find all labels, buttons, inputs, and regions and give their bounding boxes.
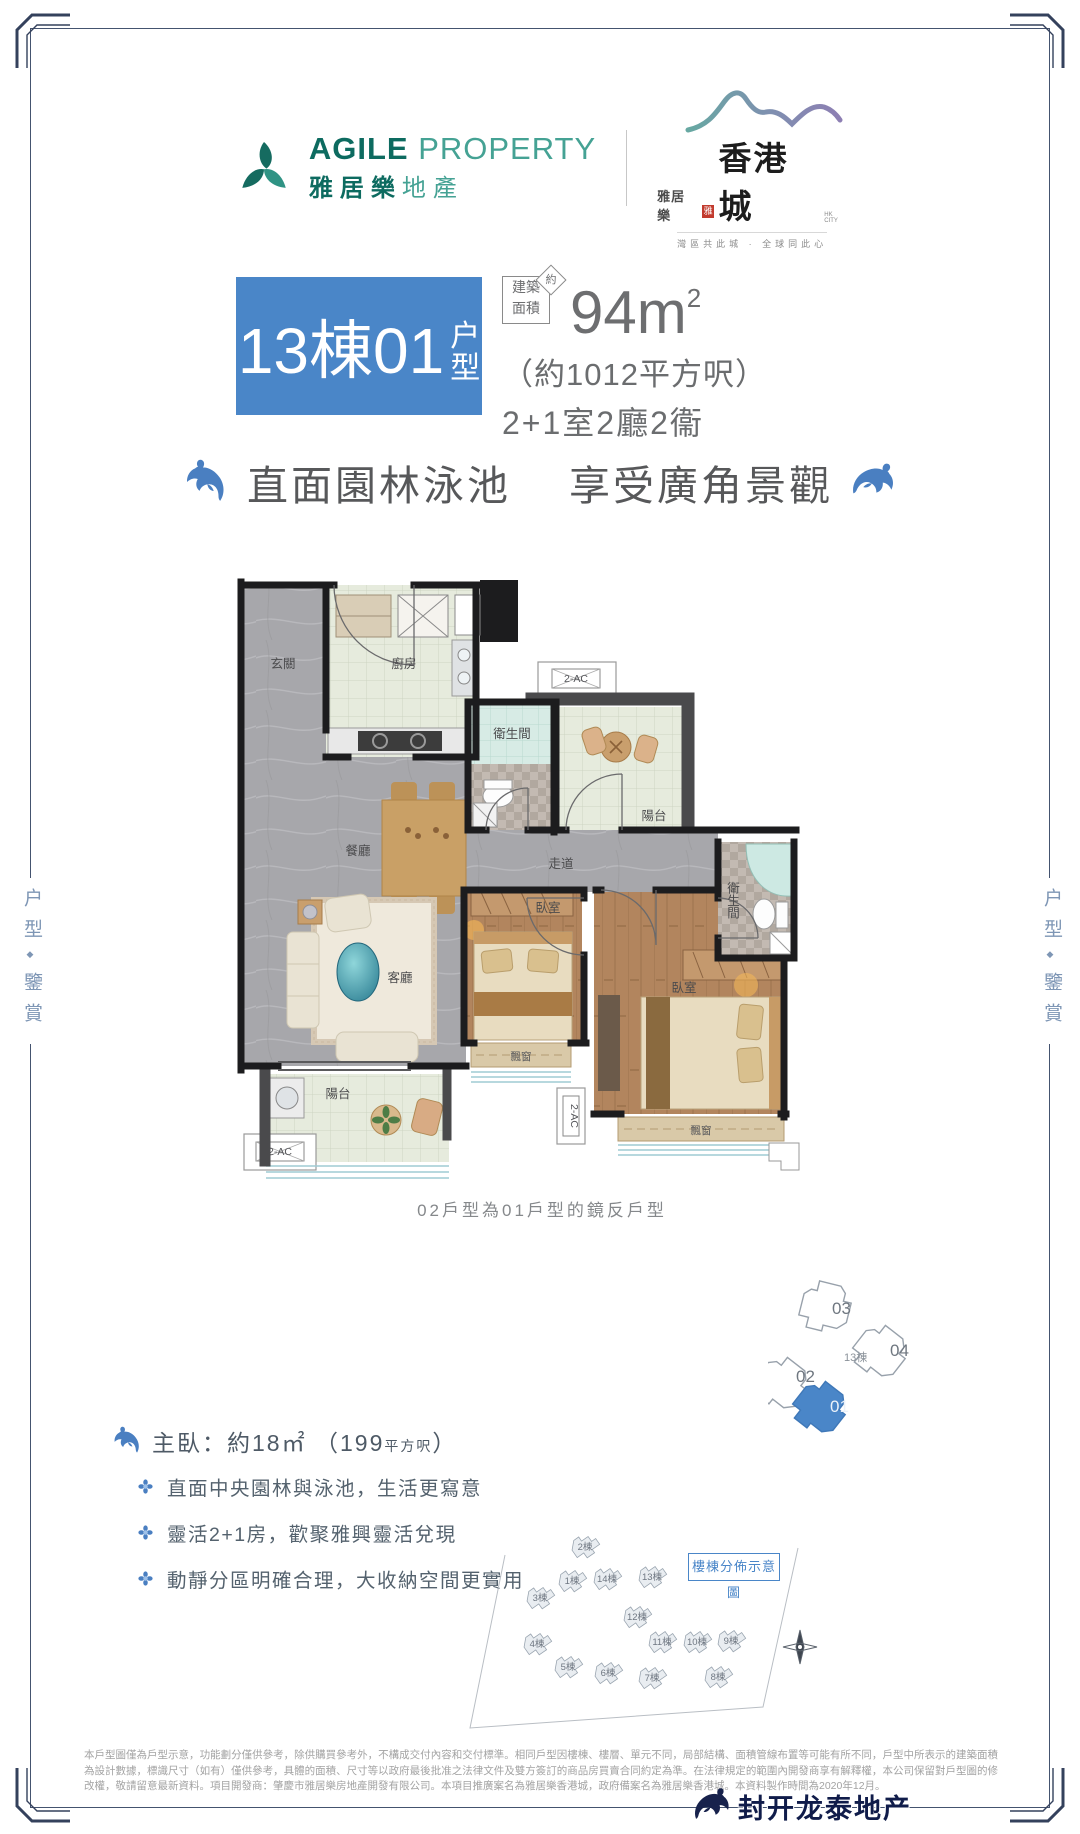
svg-text:2棟: 2棟 [578,1541,593,1553]
label-entry: 玄關 [270,656,295,671]
svg-text:9棟: 9棟 [724,1635,739,1647]
siteplan-building: 8棟 [701,1660,735,1693]
area-hk: （約1012平方呎） [502,349,767,394]
svg-text:2-AC: 2-AC [568,1104,580,1128]
siteplan-building: 7棟 [635,1661,669,1694]
area-value: 94m2 [570,268,701,343]
label-kitchen: 廚房 [391,656,416,671]
dolphin-icon [692,1786,732,1826]
agile-leaf-icon [233,137,295,199]
frame-corner-icon [1008,1766,1066,1824]
hkcity-sub: HK CITY [824,212,847,228]
svg-text:2-AC: 2-AC [268,1146,292,1158]
svg-text:6棟: 6棟 [601,1667,616,1679]
unit-title: 13棟01 [238,300,444,392]
frame-corner-icon [14,1766,72,1824]
built-area-chip: 建築面積 約 [502,276,550,324]
side-label-right: 户型◆鑒賞 [1041,878,1061,1044]
svg-text:13棟: 13棟 [642,1571,663,1583]
header: AGILE PROPERTY 雅居樂地產 雅居樂 雅 香港城 HK CITY 灣… [0,86,1080,250]
label-dining: 餐廳 [345,843,371,858]
unit-key-diagram: 03 04 02 01 13棟 [768,1262,968,1452]
flower-bullet-icon [138,1571,153,1586]
svg-text:2-AC: 2-AC [564,673,588,685]
bathroom1-zone [468,702,556,830]
ac-box-top: 2-AC [538,662,616,696]
label-corridor: 走道 [548,857,574,871]
label-bedroom2: 臥室 [671,980,696,995]
bedroom1-zone [464,888,582,1040]
siteplan-building: 14棟 [590,1562,624,1595]
unit-02: 02 [796,1367,815,1386]
siteplan-building: 6棟 [591,1656,625,1689]
hkcity-pre: 雅居樂 [657,186,698,228]
unit-key-building: 13棟 [844,1350,867,1364]
hkcity-logo: 雅居樂 雅 香港城 HK CITY 灣區共此城 · 全球同此心 [657,86,847,250]
siteplan-building: 1棟 [555,1564,589,1597]
hkcity-tagline: 灣區共此城 · 全球同此心 [677,232,827,250]
agile-name-en: AGILE PROPERTY [309,133,596,165]
label-bedroom1: 臥室 [535,900,560,915]
label-bath1: 衛生間 [493,727,531,741]
floorplan-caption: 02戶型為01戶型的鏡反戶型 [186,1196,898,1221]
svg-text:4棟: 4棟 [530,1638,545,1650]
svg-text:8棟: 8棟 [711,1671,726,1683]
siteplan-building: 13棟 [635,1560,669,1593]
dining-zone [382,782,466,914]
svg-text:3棟: 3棟 [533,1592,548,1604]
unit-03: 03 [832,1299,851,1318]
flower-bullet-icon [138,1479,153,1494]
siteplan-building: 2棟 [568,1530,602,1563]
siteplan-building: 3棟 [523,1581,557,1614]
unit-01: 01 [830,1397,849,1416]
label-balcony1: 陽台 [641,808,666,823]
svg-text:14棟: 14棟 [597,1573,618,1585]
selling-points: 直面中央園林與泳池，生活更寫意 靈活2+1房，歡聚雅興靈活兌現 動靜分區明確合理… [138,1472,524,1610]
floor-plan: 2-AC [186,500,898,1192]
unit-specs: 建築面積 約 94m2 （約1012平方呎） 2+1室2廳2衞 [502,268,767,444]
bullet-item: 直面中央園林與泳池，生活更寫意 [138,1472,524,1501]
agency-watermark: 封开龙泰地产 [692,1786,912,1826]
header-divider [626,130,627,206]
compass-icon [783,1630,817,1664]
svg-text:11棟: 11棟 [652,1636,672,1648]
svg-text:1棟: 1棟 [565,1575,580,1587]
label-bath2: 衛生間 [725,881,739,919]
agile-logo: AGILE PROPERTY 雅居樂地產 [233,133,596,203]
mountain-ridge-icon [684,86,844,138]
unit-04: 04 [890,1341,909,1360]
label-living: 客廳 [387,970,413,985]
svg-text:12棟: 12棟 [627,1611,648,1623]
siteplan-building: 9棟 [714,1624,748,1657]
unit-title-box: 13棟01 户型 [236,277,482,415]
svg-text:7棟: 7棟 [645,1672,660,1684]
siteplan-building: 12棟 [620,1600,654,1633]
dolphin-icon [110,1424,145,1459]
siteplan-building: 5棟 [551,1650,585,1683]
ac-box-bottom-left: 2-AC [244,1134,316,1170]
bullet-item: 動靜分區明確合理，大收納空間更實用 [138,1564,524,1593]
side-label-left: 户型◆鑒賞 [21,878,41,1044]
site-plan: 2棟1棟14棟13棟3棟12棟4棟11棟10棟9棟5棟6棟7棟8棟 [468,1505,828,1755]
agile-name-cn: 雅居樂地產 [309,168,596,203]
label-bay1: 飄窗 [511,1050,532,1063]
frame-corner-icon [1008,12,1066,70]
siteplan-building: 11棟 [645,1625,679,1658]
hkcity-seal-icon: 雅 [702,205,715,218]
siteplan-building: 10棟 [680,1625,714,1658]
label-bay2: 飄窗 [691,1124,712,1137]
room-layout: 2+1室2廳2衞 [502,398,767,444]
master-bedroom-line: 主臥：約18㎡ （199平方呎） [112,1424,457,1458]
poster-page: 户型◆鑒賞 户型◆鑒賞 AGILE PROPERTY 雅居樂地產 [0,0,1080,1834]
siteplan-building: 4棟 [520,1627,554,1660]
unit-title-suffix: 户型 [450,321,480,385]
ac-box-bottom-mid: 2-AC [557,1088,585,1144]
bullet-item: 靈活2+1房，歡聚雅興靈活兌現 [138,1518,524,1547]
hkcity-name: 香港城 [718,132,820,228]
siteplan-title: 樓棟分佈示意圖 [688,1553,780,1581]
svg-text:5棟: 5棟 [561,1661,576,1673]
svg-text:10棟: 10棟 [687,1636,708,1648]
kitchen-zone [326,585,476,757]
label-balcony2: 陽台 [325,1086,350,1101]
frame-corner-icon [14,12,72,70]
flower-bullet-icon [138,1525,153,1540]
